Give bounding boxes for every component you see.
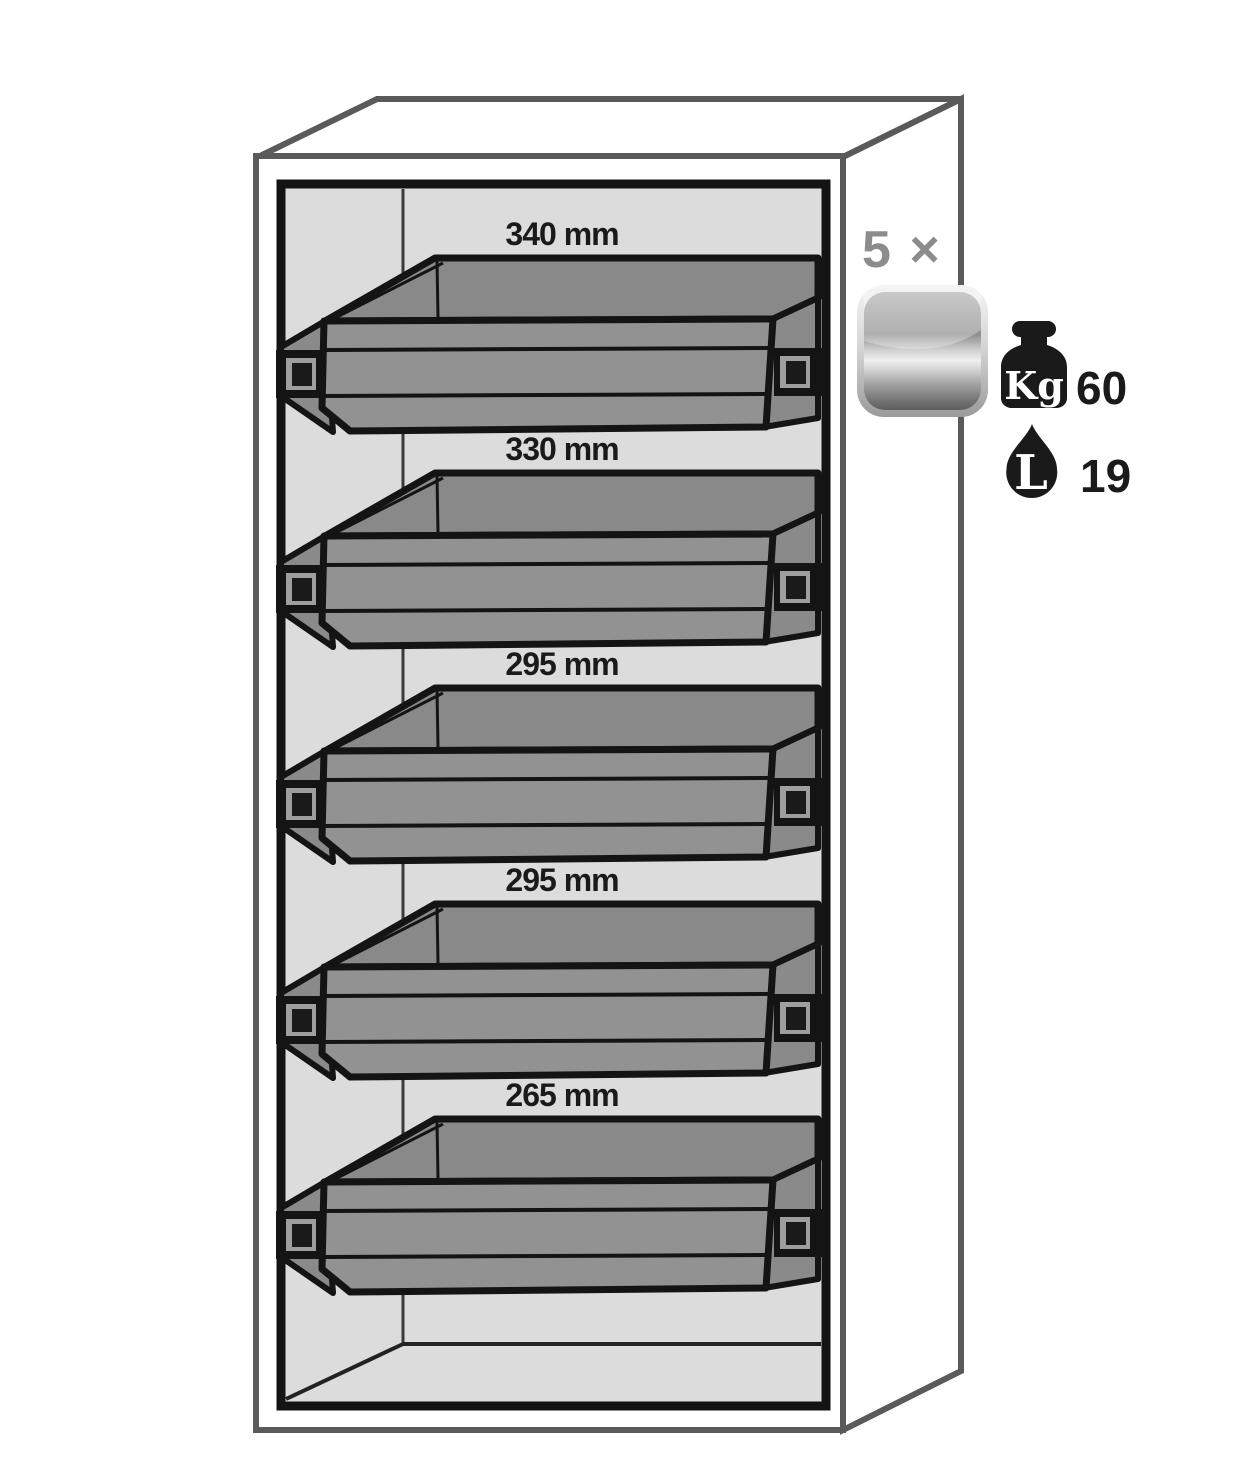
tray-5-depth-label: 265 mm <box>505 1077 618 1113</box>
tray-3-depth-label: 295 mm <box>505 646 618 682</box>
tray-4-depth-label: 295 mm <box>505 862 618 898</box>
tray-1-depth-label: 340 mm <box>505 216 618 252</box>
safety-cabinet-diagram: 340 mm 330 mm 295 mm 295 mm 265 mm 5 × K… <box>0 0 1243 1468</box>
tray-count-label: 5 × <box>862 221 942 279</box>
volume-unit-label: L <box>1014 445 1048 501</box>
max-load-value: 60 <box>1076 362 1127 414</box>
cabinet-diagram-page: 340 mm 330 mm 295 mm 295 mm 265 mm 5 × K… <box>0 0 1243 1468</box>
steel-drawer-icon <box>857 285 988 417</box>
weight-knob <box>1012 321 1056 337</box>
volume-icon: L <box>1006 424 1057 501</box>
max-load-icon: Kg <box>1001 321 1067 408</box>
volume-value: 19 <box>1080 450 1131 502</box>
tray-2-depth-label: 330 mm <box>505 431 618 467</box>
max-load-unit-label: Kg <box>1004 363 1064 408</box>
